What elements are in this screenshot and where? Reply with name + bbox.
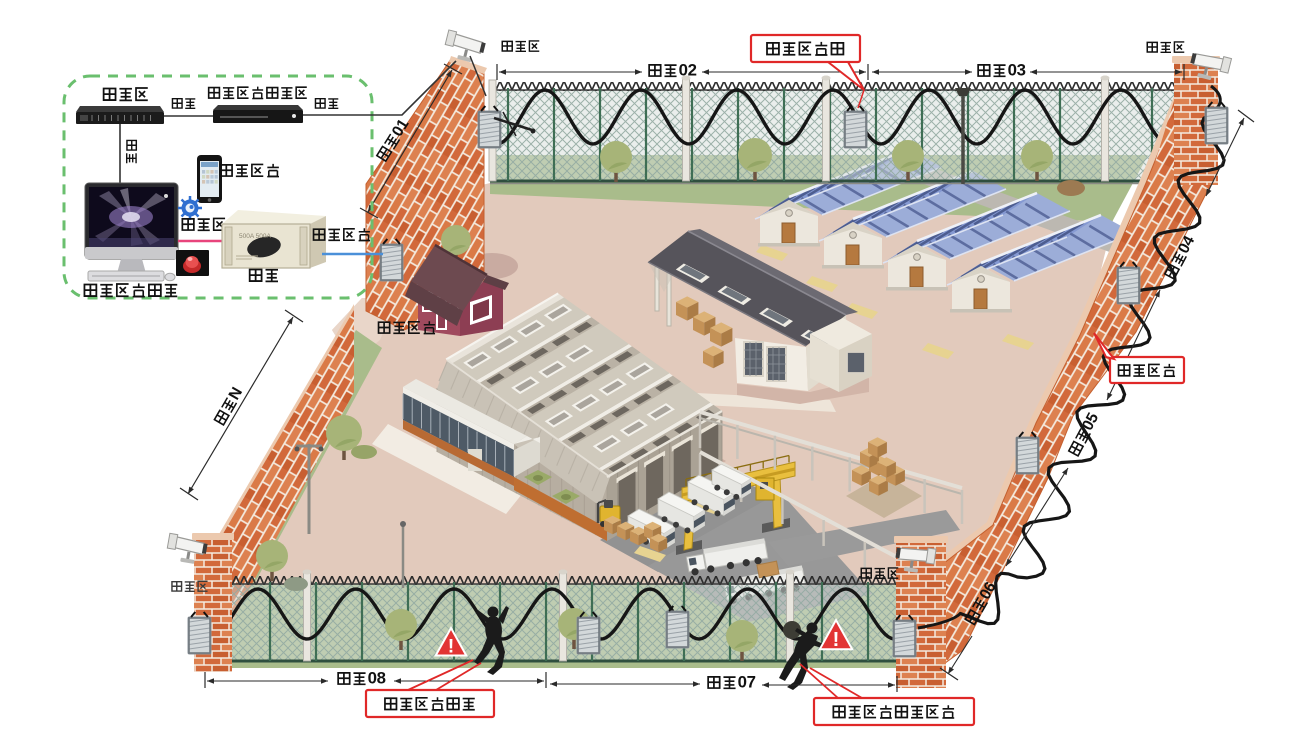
- svg-text:8: 8: [377, 669, 386, 688]
- svg-text:3: 3: [1017, 61, 1026, 80]
- svg-text:0: 0: [368, 669, 377, 688]
- svg-text:0: 0: [1008, 61, 1017, 80]
- svg-text:7: 7: [747, 673, 756, 692]
- svg-text:2: 2: [688, 61, 697, 80]
- svg-text:500A 500A: 500A 500A: [239, 233, 271, 240]
- svg-text:!: !: [833, 628, 840, 651]
- svg-text:0: 0: [738, 673, 747, 692]
- svg-text:!: !: [448, 636, 455, 658]
- svg-text:0: 0: [679, 61, 688, 80]
